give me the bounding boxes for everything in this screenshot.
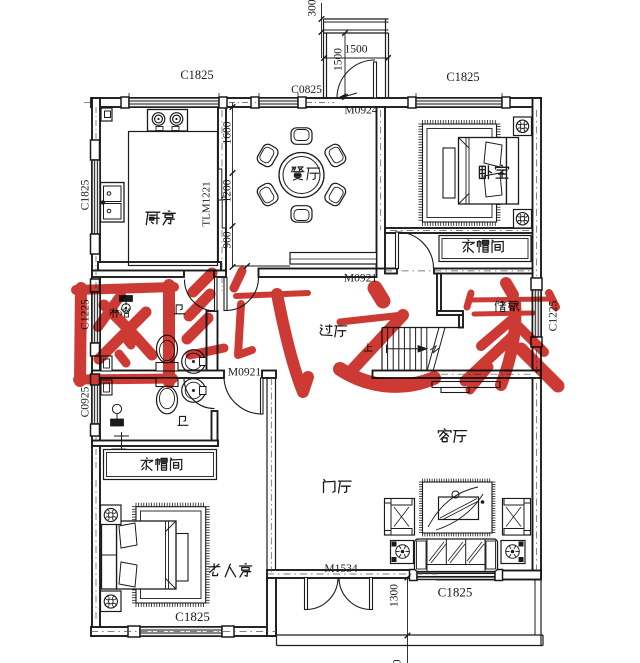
svg-text:1300: 1300 [388,584,400,607]
svg-text:1500: 1500 [345,43,368,55]
svg-text:TLM1221: TLM1221 [201,181,213,226]
svg-text:M0924: M0924 [344,104,377,116]
svg-text:C1825: C1825 [438,584,473,599]
svg-text:C1825: C1825 [79,179,91,210]
svg-text:900: 900 [221,231,233,249]
svg-text:300: 300 [306,0,318,17]
svg-text:C1825: C1825 [180,68,213,82]
svg-text:800: 800 [391,659,403,663]
svg-text:C1825: C1825 [175,609,210,624]
svg-text:M1534: M1534 [324,563,357,575]
svg-text:1600: 1600 [221,121,233,144]
svg-text:1200: 1200 [221,179,233,202]
svg-text:M0921: M0921 [228,366,261,378]
svg-text:C0825: C0825 [291,84,322,96]
svg-text:1500: 1500 [332,48,344,71]
svg-text:C1825: C1825 [446,70,479,84]
svg-text:C0925: C0925 [79,386,91,417]
